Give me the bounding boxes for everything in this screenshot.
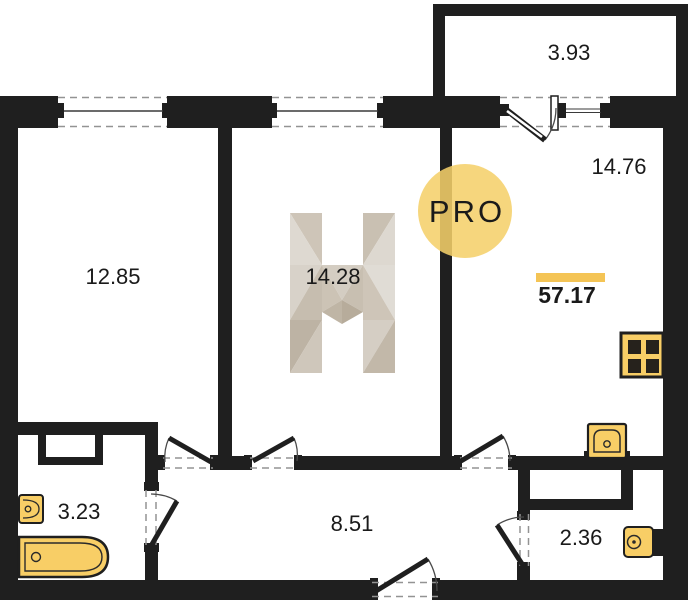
vent-grid-cell [628, 340, 641, 354]
wall-segment [518, 499, 633, 510]
window-jamb [600, 103, 611, 118]
room-left-area-label: 12.85 [85, 264, 140, 289]
window-jamb [53, 103, 64, 118]
pro-logo: PRO [418, 164, 512, 258]
wc-sink-icon [624, 527, 653, 557]
floor-plan-drawing: PRO 3.93 14.76 12.85 14.28 3.23 8.51 2.3… [0, 0, 688, 600]
vent-grid-cell [628, 359, 641, 373]
floor-plan: PRO 3.93 14.76 12.85 14.28 3.23 8.51 2.3… [0, 0, 688, 600]
wall-segment [676, 4, 688, 97]
door-arc [151, 494, 177, 501]
window-dash [58, 98, 167, 127]
wc-sink-drain [632, 540, 636, 544]
wall-segment [0, 580, 372, 600]
window-jamb [162, 103, 173, 118]
wall-segment [663, 96, 688, 600]
niche-opening [46, 435, 95, 457]
wall-segment [298, 456, 460, 470]
door-leaf-bathroom [151, 501, 177, 546]
room-middle-area-label: 14.28 [305, 264, 360, 289]
wall-segment [438, 580, 688, 600]
wall-segment [145, 422, 158, 490]
wall-segment [383, 96, 500, 128]
wc-area-label: 2.36 [560, 525, 603, 550]
wall-segment [0, 96, 18, 600]
bathroom-area-label: 3.23 [58, 499, 101, 524]
door-leaf-entrance [376, 559, 428, 591]
total-area-label: 57.17 [538, 282, 596, 308]
door-jamb [144, 482, 159, 491]
pro-logo-text: PRO [429, 194, 505, 229]
hallway-area-label: 8.51 [331, 511, 374, 536]
window-jamb [377, 103, 388, 118]
h-watermark [290, 213, 395, 373]
wall-segment [433, 4, 688, 16]
balcony-door-frame [551, 96, 558, 130]
door-leaf-balcony-inner [507, 111, 542, 137]
vent-grid-cell [646, 340, 659, 354]
wall-segment [218, 128, 232, 464]
wall-segment [621, 463, 633, 510]
wall-segment [167, 96, 272, 128]
window-jamb [266, 103, 277, 118]
kitchen-area-label: 14.76 [591, 154, 646, 179]
window-dash [272, 98, 383, 127]
total-area-accent-bar [536, 273, 605, 282]
window-glazing [64, 109, 601, 113]
balcony-area-label: 3.93 [548, 40, 591, 65]
vent-grid-cell [646, 359, 659, 373]
wall-segment [433, 4, 445, 97]
